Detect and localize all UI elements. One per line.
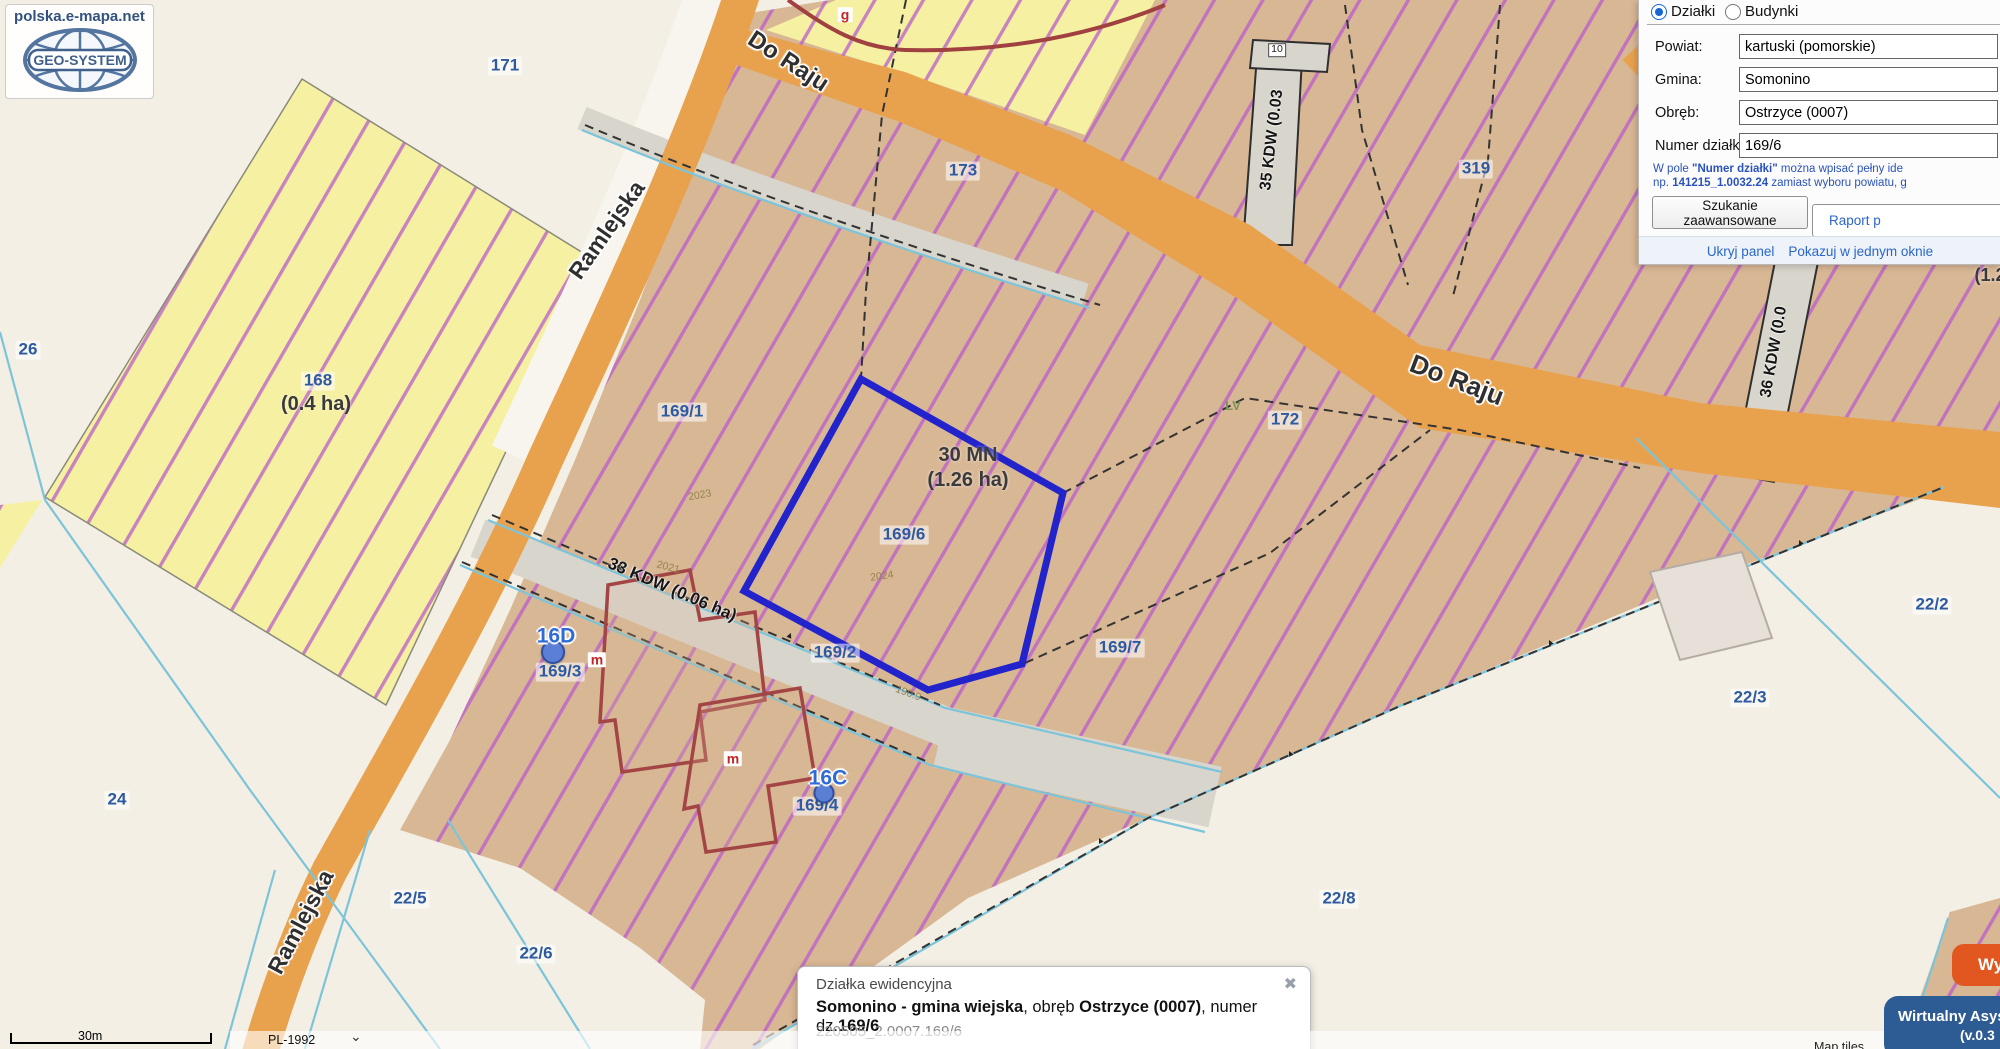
parcel-label: 169/1	[658, 403, 707, 422]
address-label-16c: 16C	[809, 766, 848, 789]
advanced-search-button[interactable]: Szukanie zaawansowane	[1652, 196, 1808, 229]
parcel-label: 169/3	[536, 663, 585, 682]
field-label-numer-dzialki: Numer działki:	[1655, 138, 1747, 154]
scale-bar-tick	[210, 1033, 212, 1044]
parcel-label: 22/3	[1730, 689, 1769, 708]
field-label-obreb: Obręb:	[1655, 105, 1699, 121]
address-label-16d: 16D	[537, 624, 576, 647]
parcel-label: 171	[488, 57, 522, 76]
crs-selector[interactable]: PL-1992	[268, 1033, 315, 1047]
radio-budynki-label[interactable]: Budynki	[1745, 3, 1798, 20]
assistant-title: Wirtualny Asys	[1898, 1008, 2000, 1025]
parcel-label-selected: 169/6	[880, 526, 929, 545]
virtual-assistant-widget[interactable]: Wirtualny Asys (v.0.3	[1884, 996, 2000, 1049]
scale-label: 30m	[78, 1029, 102, 1043]
building-type-label-m: m	[724, 751, 742, 766]
parcel-label: 172	[1268, 411, 1302, 430]
svg-text:GEO-SYSTEM: GEO-SYSTEM	[33, 52, 126, 68]
kdw-35-stub	[1250, 40, 1330, 72]
action-button-orange[interactable]: Wy	[1952, 944, 2000, 986]
parcel-label: 22/6	[516, 945, 555, 964]
map-application: ▲ ▲ ▲ ▲ ▲ ▲ Do Raju Do Raju Ramlejska Ra…	[0, 0, 2000, 1049]
scale-bar-tick	[10, 1033, 12, 1044]
parcel-label: 319	[1459, 160, 1493, 179]
help-text: W pole "Numer działki" można wpisać pełn…	[1653, 162, 2000, 190]
numer-dzialki-input[interactable]	[1739, 133, 1998, 158]
parcel-label: 22/8	[1319, 890, 1358, 909]
powiat-input[interactable]	[1739, 34, 1998, 59]
panel-separator	[1647, 24, 2000, 25]
geo-system-globe-icon: GEO-SYSTEM	[15, 27, 145, 93]
popup-title: Działka ewidencyjna	[816, 976, 952, 993]
parcel-label: 24	[105, 791, 130, 810]
attribution-bar	[230, 1031, 2000, 1049]
scale-bar	[10, 1042, 212, 1044]
report-button[interactable]: Raport p	[1812, 204, 2000, 237]
obreb-input[interactable]	[1739, 100, 1998, 125]
zone-label-30mn-area: (1.26 ha)	[927, 469, 1008, 491]
field-label-gmina: Gmina:	[1655, 72, 1702, 88]
close-icon[interactable]: ✖	[1284, 974, 1297, 994]
parcel-label: 168	[301, 372, 335, 391]
parcel-label: 173	[946, 162, 980, 181]
zone-label-30mn: 30 MN	[939, 444, 998, 466]
field-label-powiat: Powiat:	[1655, 39, 1703, 55]
search-panel: Działki Budynki Powiat: Gmina: Obręb: Nu…	[1638, 0, 2000, 265]
assistant-version: (v.0.3	[1960, 1027, 1995, 1043]
building-type-label-m: m	[588, 652, 606, 667]
radio-dzialki[interactable]	[1651, 4, 1667, 20]
landuse-label-lv: LV	[1225, 399, 1241, 413]
zone-label-yellow-area: (0.4 ha)	[281, 393, 351, 415]
map-tiles-attribution: Map tiles	[1814, 1040, 1864, 1049]
zone-label-clipped-right: (1.2	[1974, 266, 2000, 286]
single-window-link[interactable]: Pokazuj w jednym oknie	[1788, 244, 1933, 259]
parcel-label: 22/2	[1912, 596, 1951, 615]
radio-dzialki-label[interactable]: Działki	[1671, 3, 1715, 20]
parcel-label: 169/2	[811, 644, 860, 663]
dimension-box: 10	[1268, 43, 1286, 57]
site-logo-card[interactable]: polska.e-mapa.net GEO-SYSTEM	[5, 4, 154, 99]
chevron-down-icon[interactable]: ⌄	[350, 1028, 362, 1045]
parcel-label: 22/5	[390, 890, 429, 909]
hide-panel-link[interactable]: Ukryj panel	[1707, 244, 1775, 259]
zone-letter-g: g	[838, 7, 853, 22]
site-name: polska.e-mapa.net	[6, 8, 153, 25]
parcel-label: 169/7	[1096, 639, 1145, 658]
gmina-input[interactable]	[1739, 67, 1998, 92]
parcel-label: 26	[16, 341, 41, 360]
radio-budynki[interactable]	[1725, 4, 1741, 20]
